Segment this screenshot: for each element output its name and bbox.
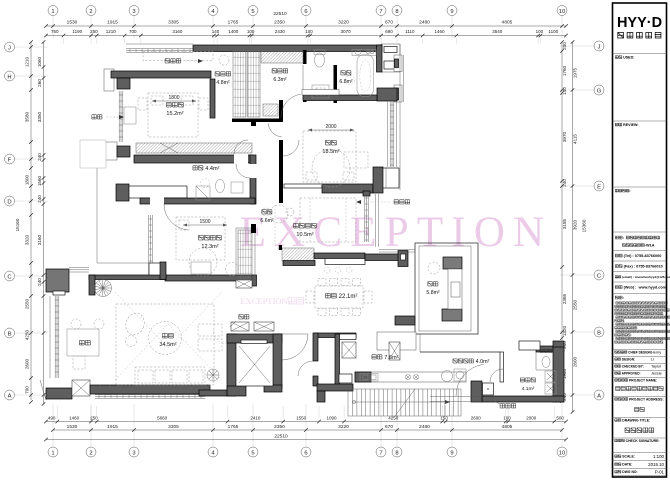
svg-text:·: · bbox=[615, 330, 616, 334]
svg-text:760: 760 bbox=[51, 29, 59, 34]
svg-text:500: 500 bbox=[556, 415, 564, 420]
svg-text:J: J bbox=[8, 45, 11, 51]
svg-text:.: . bbox=[663, 312, 664, 316]
svg-text:34.5m²: 34.5m² bbox=[159, 342, 176, 348]
svg-text:700: 700 bbox=[25, 386, 30, 394]
svg-text:1: 1 bbox=[51, 450, 54, 456]
svg-text:2350: 2350 bbox=[274, 424, 285, 430]
svg-text:140: 140 bbox=[562, 87, 567, 95]
svg-text:CHIEF DESIGN:: CHIEF DESIGN: bbox=[627, 350, 652, 354]
svg-text:5.8m²: 5.8m² bbox=[426, 290, 439, 296]
svg-text:2410: 2410 bbox=[250, 415, 261, 420]
svg-text:1460: 1460 bbox=[435, 29, 446, 34]
svg-text:100: 100 bbox=[503, 415, 511, 420]
svg-text:8: 8 bbox=[395, 450, 398, 456]
svg-text:1760: 1760 bbox=[562, 65, 567, 76]
svg-text:CHECKED BY:: CHECKED BY: bbox=[621, 364, 644, 368]
svg-text:(Web) : www.hyyd.com: (Web) : www.hyyd.com bbox=[623, 286, 667, 290]
svg-text:4.4m²: 4.4m² bbox=[204, 166, 220, 172]
svg-text:9: 9 bbox=[450, 450, 453, 456]
svg-text:6.3m²: 6.3m² bbox=[273, 77, 286, 83]
svg-text:3970: 3970 bbox=[562, 131, 567, 142]
svg-text:2015.10: 2015.10 bbox=[648, 462, 664, 467]
svg-text:3220: 3220 bbox=[338, 424, 349, 430]
svg-text:18.5m²: 18.5m² bbox=[322, 149, 339, 155]
svg-text:3160: 3160 bbox=[172, 29, 183, 34]
svg-text:Henry: Henry bbox=[651, 350, 661, 354]
svg-text:1210: 1210 bbox=[106, 29, 117, 34]
svg-text:·: · bbox=[615, 315, 616, 319]
svg-text:1060: 1060 bbox=[37, 56, 42, 67]
svg-text:100: 100 bbox=[305, 29, 313, 34]
svg-text:REVIEW:: REVIEW: bbox=[622, 123, 638, 127]
svg-text:240: 240 bbox=[37, 195, 42, 203]
svg-text:PROJECT NAME:: PROJECT NAME: bbox=[628, 378, 657, 382]
svg-text:DRAWING TITLE:: DRAWING TITLE: bbox=[621, 418, 650, 422]
svg-text:490: 490 bbox=[48, 415, 56, 420]
svg-text:J: J bbox=[598, 44, 601, 50]
svg-text:22.1m²: 22.1m² bbox=[337, 294, 357, 300]
svg-text:B: B bbox=[8, 331, 12, 337]
svg-text:DATE:: DATE: bbox=[621, 463, 632, 467]
svg-text:.: . bbox=[637, 326, 638, 330]
svg-text:6: 6 bbox=[304, 9, 307, 15]
svg-text:A: A bbox=[597, 393, 601, 399]
svg-text:670: 670 bbox=[385, 20, 393, 26]
svg-text:1190: 1190 bbox=[72, 29, 82, 34]
svg-text:3320: 3320 bbox=[25, 234, 30, 245]
svg-text:22510: 22510 bbox=[274, 433, 288, 439]
svg-text:6.6m²: 6.6m² bbox=[260, 218, 273, 224]
svg-text:4.0m²: 4.0m² bbox=[474, 359, 489, 365]
svg-text:C: C bbox=[7, 274, 11, 280]
svg-text:3920: 3920 bbox=[573, 219, 578, 230]
svg-text:1800: 1800 bbox=[168, 95, 179, 101]
svg-text:2550: 2550 bbox=[573, 299, 578, 310]
svg-text:2000: 2000 bbox=[325, 124, 336, 130]
svg-text:1800: 1800 bbox=[25, 174, 30, 185]
svg-text:SCALE:: SCALE: bbox=[621, 455, 635, 459]
svg-text::: : bbox=[623, 236, 626, 240]
svg-text:3305: 3305 bbox=[168, 20, 179, 26]
svg-text:1460: 1460 bbox=[69, 415, 80, 420]
svg-text:15160: 15160 bbox=[15, 218, 20, 231]
svg-text:APPROVED:: APPROVED: bbox=[621, 371, 641, 375]
svg-text:1400: 1400 bbox=[228, 29, 239, 34]
svg-text:A: A bbox=[8, 393, 12, 399]
svg-text:10: 10 bbox=[559, 450, 565, 456]
svg-text:1550: 1550 bbox=[296, 415, 307, 420]
svg-text:C: C bbox=[597, 273, 601, 279]
svg-text:1: 1 bbox=[51, 9, 54, 15]
svg-text:6: 6 bbox=[304, 450, 307, 456]
svg-text:DWG NO:: DWG NO: bbox=[621, 470, 637, 474]
svg-text:1210: 1210 bbox=[25, 56, 30, 67]
svg-text:4250: 4250 bbox=[25, 329, 30, 340]
svg-text:2480: 2480 bbox=[419, 20, 430, 26]
svg-text:200: 200 bbox=[562, 42, 567, 50]
svg-text:3220: 3220 bbox=[338, 20, 349, 26]
svg-text:.: . bbox=[667, 305, 668, 309]
svg-text:1765: 1765 bbox=[228, 424, 239, 430]
svg-text:B: B bbox=[597, 330, 601, 336]
svg-text:2480: 2480 bbox=[419, 424, 430, 430]
svg-text:2600: 2600 bbox=[471, 415, 482, 420]
svg-text:2350: 2350 bbox=[274, 20, 285, 26]
svg-text:10.5m²: 10.5m² bbox=[296, 232, 313, 238]
svg-text:700: 700 bbox=[129, 29, 137, 34]
svg-text:3: 3 bbox=[132, 9, 135, 15]
svg-text:1100: 1100 bbox=[548, 29, 558, 34]
svg-text:D: D bbox=[7, 199, 11, 205]
svg-text:2: 2 bbox=[89, 9, 92, 15]
svg-text:2550: 2550 bbox=[25, 298, 30, 309]
svg-text:6.8m²: 6.8m² bbox=[339, 79, 352, 85]
svg-text:DESIGN:: DESIGN: bbox=[621, 357, 635, 361]
svg-text:PROJECT ADDRESS:: PROJECT ADDRESS: bbox=[628, 397, 663, 401]
svg-text:240: 240 bbox=[37, 278, 42, 286]
svg-text:1090: 1090 bbox=[327, 415, 338, 420]
svg-text:EXCEPTION: EXCEPTION bbox=[240, 296, 287, 306]
svg-text:15.2m²: 15.2m² bbox=[166, 111, 183, 117]
svg-text:3: 3 bbox=[132, 450, 135, 456]
svg-text:-W1A: -W1A bbox=[645, 244, 655, 248]
svg-text:1110: 1110 bbox=[405, 29, 415, 34]
svg-text:(Tel) : 0755-83766000: (Tel) : 0755-83766000 bbox=[623, 254, 662, 258]
svg-text:.: . bbox=[631, 333, 632, 337]
svg-text:F: F bbox=[8, 157, 12, 163]
svg-text:4.1m²: 4.1m² bbox=[522, 386, 535, 392]
svg-text:3185: 3185 bbox=[562, 218, 567, 229]
svg-text:2: 2 bbox=[89, 450, 92, 456]
svg-text:1500: 1500 bbox=[199, 219, 210, 225]
svg-text:1915: 1915 bbox=[107, 20, 118, 26]
svg-text:2430: 2430 bbox=[275, 29, 286, 34]
svg-text:8: 8 bbox=[395, 9, 398, 15]
svg-text:12.3m²: 12.3m² bbox=[201, 244, 218, 250]
svg-text:4805: 4805 bbox=[502, 20, 513, 26]
svg-text:Taylor: Taylor bbox=[651, 364, 662, 368]
svg-text:3070: 3070 bbox=[341, 29, 352, 34]
svg-text:Jessie: Jessie bbox=[651, 371, 662, 375]
svg-text:H: H bbox=[7, 74, 11, 80]
svg-text:2600: 2600 bbox=[573, 356, 578, 367]
svg-text:·: · bbox=[615, 337, 616, 341]
svg-text:250: 250 bbox=[90, 29, 98, 34]
svg-text:3160: 3160 bbox=[37, 234, 42, 245]
svg-text:4115: 4115 bbox=[573, 134, 578, 144]
svg-text:1975: 1975 bbox=[573, 67, 578, 78]
svg-text:670: 670 bbox=[385, 424, 393, 430]
svg-text:7: 7 bbox=[379, 450, 382, 456]
svg-text:2000: 2000 bbox=[526, 415, 537, 420]
svg-text:·: · bbox=[615, 323, 616, 327]
svg-text:1560: 1560 bbox=[37, 175, 42, 186]
svg-text:1:100: 1:100 bbox=[653, 454, 665, 459]
svg-text:22510: 22510 bbox=[273, 11, 287, 17]
svg-text::: : bbox=[629, 189, 630, 193]
svg-text:CHECK SIGNATURE:: CHECK SIGNATURE: bbox=[625, 439, 660, 443]
svg-text:3580: 3580 bbox=[25, 111, 30, 122]
svg-text:2365: 2365 bbox=[562, 293, 567, 304]
svg-text:USED:: USED: bbox=[622, 56, 634, 60]
svg-text:100: 100 bbox=[247, 29, 255, 34]
svg-text:10: 10 bbox=[559, 9, 565, 15]
svg-text:E: E bbox=[597, 184, 601, 190]
svg-text:5660: 5660 bbox=[157, 415, 168, 420]
svg-text:260: 260 bbox=[37, 79, 42, 87]
svg-text:4805: 4805 bbox=[502, 424, 513, 430]
svg-text:(email) : shenzhenhyyd@126.com: (email) : shenzhenhyyd@126.com bbox=[621, 275, 670, 279]
svg-text:7: 7 bbox=[379, 9, 382, 15]
svg-text:1530: 1530 bbox=[67, 424, 78, 430]
svg-text:690: 690 bbox=[385, 29, 393, 34]
svg-text:3350: 3350 bbox=[37, 111, 42, 122]
svg-text:240: 240 bbox=[37, 153, 42, 161]
svg-text:G: G bbox=[597, 88, 602, 94]
svg-text:7.6m²: 7.6m² bbox=[383, 355, 399, 361]
svg-text:(Fax) : 0755-83766010: (Fax) : 0755-83766010 bbox=[623, 265, 663, 269]
svg-text:100: 100 bbox=[536, 29, 544, 34]
svg-text:140: 140 bbox=[212, 29, 220, 34]
svg-text:9: 9 bbox=[450, 9, 453, 15]
svg-text:1915: 1915 bbox=[107, 424, 118, 430]
svg-text:2600: 2600 bbox=[25, 358, 30, 369]
svg-text:1530: 1530 bbox=[67, 20, 78, 26]
svg-text:Li: Li bbox=[651, 357, 654, 361]
svg-text:3540: 3540 bbox=[492, 29, 503, 34]
svg-text:.: . bbox=[663, 340, 664, 344]
svg-text:3305: 3305 bbox=[168, 424, 179, 430]
svg-text:1765: 1765 bbox=[228, 20, 239, 26]
svg-text:5: 5 bbox=[251, 9, 254, 15]
svg-text:.: . bbox=[624, 319, 625, 323]
svg-text:HYY·D: HYY·D bbox=[617, 15, 662, 31]
svg-text:15360: 15360 bbox=[582, 219, 587, 232]
svg-text:5: 5 bbox=[251, 450, 254, 456]
svg-text::: : bbox=[623, 296, 624, 300]
svg-text:4.8m²: 4.8m² bbox=[216, 80, 229, 86]
svg-text:·: · bbox=[615, 301, 616, 305]
svg-text:P-01: P-01 bbox=[655, 470, 665, 475]
